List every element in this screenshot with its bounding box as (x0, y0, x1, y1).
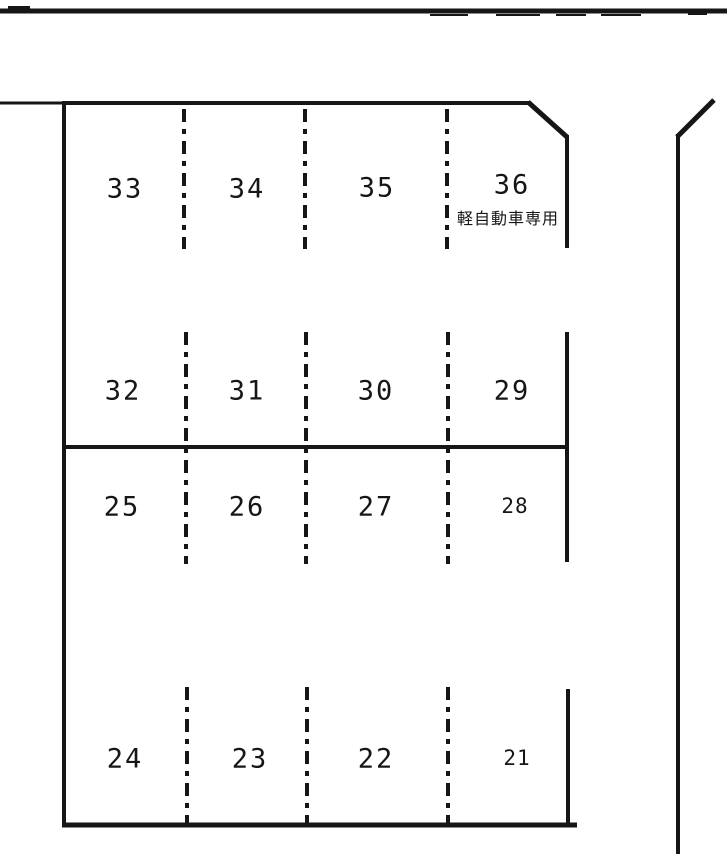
stall-30-label: 30 (358, 376, 395, 407)
top-boundary-line (0, 6, 727, 12)
stall-26-label: 26 (229, 492, 266, 523)
stall-divider-lines-bottom-row (187, 687, 448, 823)
right-parcel-boundary (677, 100, 714, 854)
stall-27-label: 27 (358, 492, 395, 523)
stall-31-label: 31 (229, 376, 266, 407)
stall-25-label: 25 (104, 492, 141, 523)
stall-36-light-vehicle-only-note: 軽自動車専用 (457, 205, 559, 229)
stall-29-label: 29 (494, 376, 531, 407)
stall-33-label: 33 (107, 174, 144, 205)
stall-35-label: 35 (359, 173, 396, 204)
stall-28-label: 28 (501, 494, 528, 518)
stall-34-label: 34 (229, 174, 266, 205)
stall-32-label: 32 (105, 376, 142, 407)
stall-21-label: 21 (503, 746, 530, 770)
stall-24-label: 24 (107, 744, 144, 775)
scan-artifact-marks (430, 14, 707, 15)
stall-23-label: 23 (232, 744, 269, 775)
stall-22-label: 22 (358, 744, 395, 775)
stall-36-label: 36 (494, 170, 531, 201)
parking-plan-drawing (0, 0, 727, 854)
parking-plan-canvas: 33 34 35 36 軽自動車専用 32 31 30 29 25 26 27 … (0, 0, 727, 854)
stall-divider-lines-top-row (184, 109, 447, 249)
